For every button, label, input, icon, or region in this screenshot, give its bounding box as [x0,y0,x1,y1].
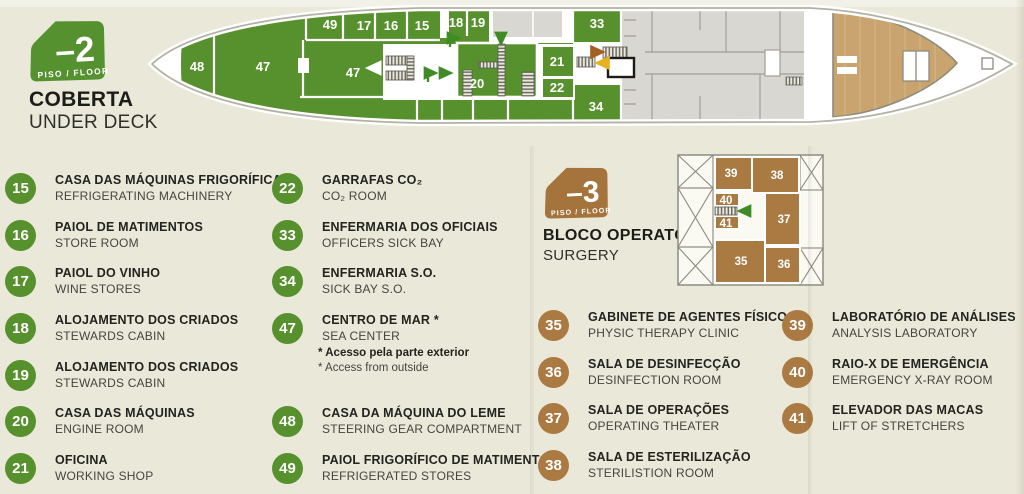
legend-item-47: 47 CENTRO DE MAR * SEA CENTER [272,313,439,344]
stretcher-lift-box [608,58,634,77]
legend-item-20: 20 CASA DAS MÁQUINAS ENGINE ROOM [5,406,195,437]
room-name-pt: GARRAFAS CO₂ [322,173,422,188]
room-name-en: OFFICERS SICK BAY [322,236,498,251]
room-name-pt: SALA DE OPERAÇÕES [588,403,729,418]
room-name-en: REFRIGERATING MACHINERY [55,189,290,204]
plan-room-number: 15 [415,18,429,33]
plan-room-number: 36 [778,259,791,271]
room-name-en: STERILISTION ROOM [588,466,751,481]
room-name-pt: PAIOL DE MATIMENTOS [55,220,203,235]
room-name-en: REFRIGERATED STORES [322,469,558,484]
room-name-pt: ENFERMARIA S.O. [322,266,436,281]
legend-item-22: 22 GARRAFAS CO₂ CO₂ ROOM [272,173,422,204]
plan-room-number: 41 [720,218,733,230]
room-name-en: WORKING SHOP [55,469,153,484]
room-number-badge: 18 [5,313,36,344]
room-number-badge: 36 [538,357,569,388]
deck-title-pt: COBERTA [29,88,133,112]
plan-room-number: 37 [778,214,791,226]
footnote-en: * Access from outside [318,362,469,374]
footnote-pt: * Acesso pela parte exterior [318,347,469,359]
plan-room-number: 22 [550,80,564,95]
legend-item-49: 49 PAIOL FRIGORÍFICO DE MATIMENTOS REFRI… [272,453,558,484]
room-number-badge: 22 [272,173,303,204]
legend-item-33: 33 ENFERMARIA DOS OFICIAIS OFFICERS SICK… [272,220,498,251]
room-number-badge: 16 [5,220,36,251]
room-name-en: CO₂ ROOM [322,189,422,204]
legend-item-37: 37 SALA DE OPERAÇÕES OPERATING THEATER [538,403,729,434]
surgery-stairs [715,207,737,215]
room-number-badge: 19 [5,360,36,391]
legend-item-35: 35 GABINETE DE AGENTES FÍSICOS PHYSIC TH… [538,310,796,341]
room-name-pt: SALA DE DESINFECÇÃO [588,357,741,372]
plan-room-number: 20 [470,76,484,91]
fold-crease [808,146,815,494]
room-name-pt: CASA DAS MÁQUINAS FRIGORÍFICAS [55,173,290,188]
room-number-badge: 48 [272,406,303,437]
room-number-badge: 21 [5,453,36,484]
room-name-en: LIFT OF STRETCHERS [832,419,983,434]
room-name-pt: SALA DE ESTERILIZAÇÃO [588,450,751,465]
room-name-pt: ALOJAMENTO DOS CRIADOS [55,360,238,375]
floor-level: –2 [54,29,96,71]
plan-room-number: 49 [323,17,337,32]
legend-item-36: 36 SALA DE DESINFECÇÃO DESINFECTION ROOM [538,357,741,388]
legend-item-15: 15 CASA DAS MÁQUINAS FRIGORÍFICAS REFRIG… [5,173,290,204]
room-name-en: ENGINE ROOM [55,422,195,437]
plan-room-number: 16 [384,18,398,33]
room-name-pt: CASA DAS MÁQUINAS [55,406,195,421]
floor-badge-minus-3: –3 PISO / FLOOR [541,164,612,221]
room-name-pt: ELEVADOR DAS MACAS [832,403,983,418]
room-number-badge: 15 [5,173,36,204]
room-number-badge: 17 [5,266,36,297]
plan-room-number: 19 [471,15,485,30]
legend-item-17: 17 PAIOL DO VINHO WINE STORES [5,266,160,297]
plan-room-number: 21 [550,54,564,69]
room-name-en: ANALYSIS LABORATORY [832,326,1016,341]
legend-item-34: 34 ENFERMARIA S.O. SICK BAY S.O. [272,266,436,297]
room-name-en: EMERGENCY X-RAY ROOM [832,373,993,388]
room-name-pt: CASA DA MÁQUINA DO LEME [322,406,522,421]
legend-item-39: 39 LABORATÓRIO DE ANÁLISES ANALYSIS LABO… [782,310,1016,341]
room-name-en: DESINFECTION ROOM [588,373,741,388]
funnel-casing [493,9,562,37]
floor-badge-minus-2: –2 PISO / FLOOR [25,17,109,86]
fold-crease [530,146,537,494]
legend-item-16: 16 PAIOL DE MATIMENTOS STORE ROOM [5,220,203,251]
plan-room-number: 33 [590,16,604,31]
legend-item-21: 21 OFICINA WORKING SHOP [5,453,153,484]
legend-item-19: 19 ALOJAMENTO DOS CRIADOS STEWARDS CABIN [5,360,238,391]
scan-edge-shadow [1015,0,1024,494]
room-name-en: STEWARDS CABIN [55,376,238,391]
room-number-badge: 34 [272,266,303,297]
room-name-en: PHYSIC THERAPY CLINIC [588,326,796,341]
room-name-en: SICK BAY S.O. [322,282,436,297]
deck-title-en: UNDER DECK [29,112,158,134]
room-name-pt: OFICINA [55,453,153,468]
floor-level: –3 [565,175,600,210]
legend-item-48: 48 CASA DA MÁQUINA DO LEME STEERING GEAR… [272,406,522,437]
legend-item-38: 38 SALA DE ESTERILIZAÇÃO STERILISTION RO… [538,450,751,481]
room-name-pt: RAIO-X DE EMERGÊNCIA [832,357,993,372]
room-name-pt: PAIOL DO VINHO [55,266,160,281]
room-name-pt: PAIOL FRIGORÍFICO DE MATIMENTOS [322,453,558,468]
room-name-en: STORE ROOM [55,236,203,251]
room-name-en: OPERATING THEATER [588,419,729,434]
plan-room-number: 35 [735,256,748,268]
room-number-badge: 38 [538,450,569,481]
plan-room-number: 34 [589,99,604,114]
room-name-pt: LABORATÓRIO DE ANÁLISES [832,310,1016,325]
room-name-en: WINE STORES [55,282,160,297]
room-name-pt: CENTRO DE MAR * [322,313,439,328]
surgery-plan-deck-minus-3: 39 38 40 41 37 35 36 [670,148,830,290]
room-name-en: STEWARDS CABIN [55,329,238,344]
plan-room-number: 40 [720,195,733,207]
plan-room-number: 39 [725,168,738,180]
room-name-pt: ENFERMARIA DOS OFICIAIS [322,220,498,235]
room-number-badge: 35 [538,310,569,341]
room-name-en: STEERING GEAR COMPARTMENT [322,422,522,437]
room-number-badge: 37 [538,403,569,434]
plan-room-number: 47 [256,59,270,74]
legend-item-18: 18 ALOJAMENTO DOS CRIADOS STEWARDS CABIN [5,313,238,344]
plan-room-number: 18 [449,15,463,30]
room-number-badge: 20 [5,406,36,437]
surgery-title-en: SURGERY [543,247,619,264]
room-number-badge: 49 [272,453,303,484]
plan-room-number: 48 [190,59,204,74]
leaflet-page: 48 47 49 17 16 15 18 19 47 20 21 22 33 3… [0,0,1024,494]
room-name-en: SEA CENTER [322,329,439,344]
room-number-badge: 33 [272,220,303,251]
room-name-pt: ALOJAMENTO DOS CRIADOS [55,313,238,328]
room-name-pt: GABINETE DE AGENTES FÍSICOS [588,310,796,325]
plan-room-number: 38 [771,170,784,182]
room-number-badge: 47 [272,313,303,344]
plan-room-number: 47 [346,65,360,80]
plan-room-number: 17 [357,18,371,33]
access-footnote: * Acesso pela parte exterior * Access fr… [318,347,469,374]
